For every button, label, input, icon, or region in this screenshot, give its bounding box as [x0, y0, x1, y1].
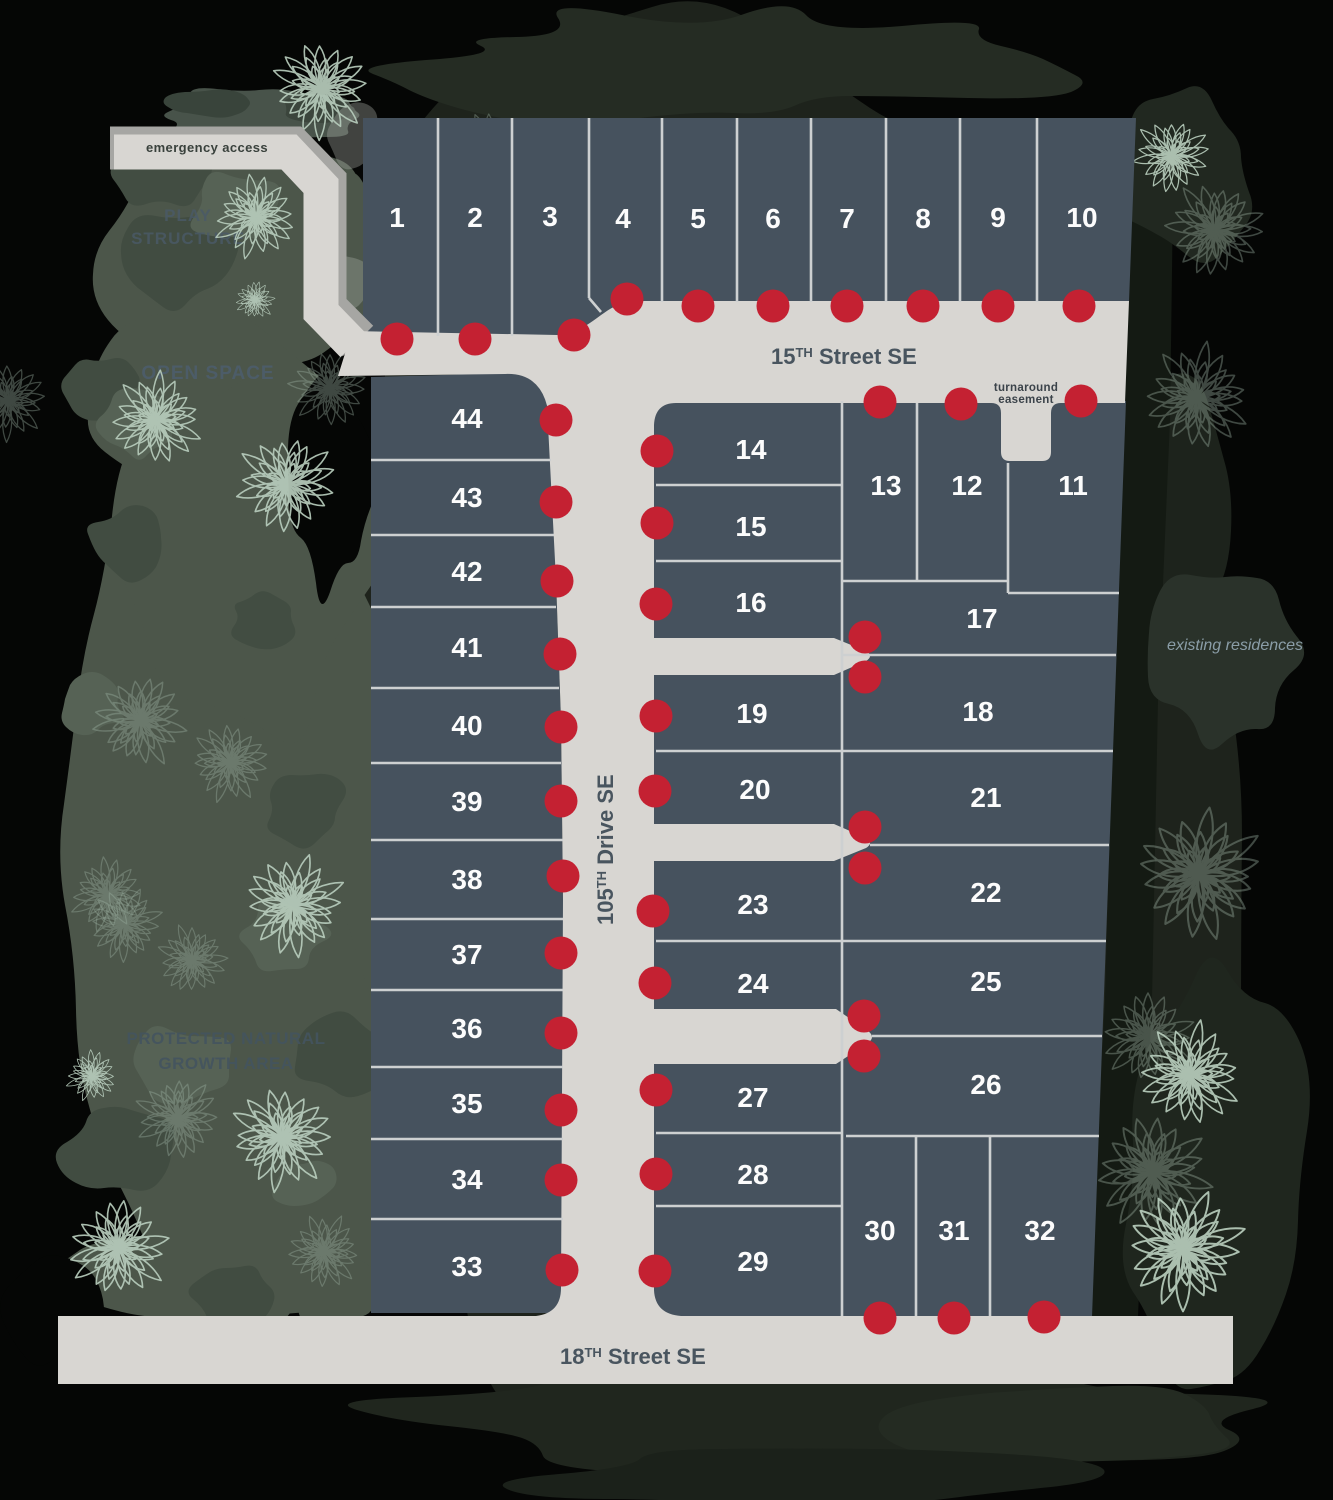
- svg-text:8: 8: [915, 203, 931, 234]
- svg-text:1: 1: [389, 202, 405, 233]
- svg-text:28: 28: [737, 1159, 768, 1190]
- svg-text:15TH Street SE: 15TH Street SE: [771, 344, 917, 369]
- svg-text:34: 34: [451, 1164, 483, 1195]
- svg-text:2: 2: [467, 202, 483, 233]
- svg-text:9: 9: [990, 202, 1006, 233]
- svg-text:30: 30: [864, 1215, 895, 1246]
- svg-text:17: 17: [966, 603, 997, 634]
- svg-text:PLAY: PLAY: [164, 206, 212, 225]
- svg-text:24: 24: [737, 968, 769, 999]
- svg-text:37: 37: [451, 939, 482, 970]
- svg-text:40: 40: [451, 710, 482, 741]
- svg-text:16: 16: [735, 587, 766, 618]
- svg-text:PROTECTED NATURAL: PROTECTED NATURAL: [127, 1029, 326, 1048]
- svg-text:18: 18: [962, 696, 993, 727]
- svg-text:21: 21: [970, 782, 1001, 813]
- svg-text:31: 31: [938, 1215, 969, 1246]
- svg-text:35: 35: [451, 1088, 482, 1119]
- svg-text:41: 41: [451, 632, 482, 663]
- svg-text:42: 42: [451, 556, 482, 587]
- svg-text:15: 15: [735, 511, 766, 542]
- svg-text:easement: easement: [998, 394, 1053, 406]
- svg-text:7: 7: [839, 203, 855, 234]
- svg-text:10: 10: [1066, 202, 1097, 233]
- svg-text:11: 11: [1058, 470, 1088, 501]
- svg-text:3: 3: [542, 201, 558, 232]
- svg-text:4: 4: [615, 203, 631, 234]
- svg-text:GROWTH AREA: GROWTH AREA: [158, 1054, 293, 1073]
- svg-text:43: 43: [451, 482, 482, 513]
- svg-text:36: 36: [451, 1013, 482, 1044]
- svg-text:STRUCTURE: STRUCTURE: [131, 229, 245, 248]
- svg-text:turnaround: turnaround: [994, 382, 1058, 394]
- svg-text:27: 27: [737, 1082, 768, 1113]
- svg-text:12: 12: [951, 470, 982, 501]
- svg-text:38: 38: [451, 864, 482, 895]
- svg-text:23: 23: [737, 889, 768, 920]
- svg-text:33: 33: [451, 1251, 482, 1282]
- svg-text:6: 6: [765, 203, 781, 234]
- svg-text:existing residences: existing residences: [1167, 637, 1303, 654]
- svg-text:105TH Drive SE: 105TH Drive SE: [593, 774, 618, 925]
- svg-text:29: 29: [737, 1246, 768, 1277]
- svg-text:emergency access: emergency access: [146, 140, 268, 155]
- svg-text:20: 20: [739, 774, 770, 805]
- svg-text:13: 13: [870, 470, 901, 501]
- svg-text:19: 19: [736, 698, 767, 729]
- svg-text:25: 25: [970, 966, 1001, 997]
- svg-text:26: 26: [970, 1069, 1001, 1100]
- svg-text:44: 44: [451, 403, 483, 434]
- svg-text:39: 39: [451, 786, 482, 817]
- svg-text:32: 32: [1024, 1215, 1055, 1246]
- svg-text:5: 5: [690, 203, 706, 234]
- svg-text:22: 22: [970, 877, 1001, 908]
- svg-text:14: 14: [735, 434, 767, 465]
- svg-text:18TH Street SE: 18TH Street SE: [560, 1344, 706, 1369]
